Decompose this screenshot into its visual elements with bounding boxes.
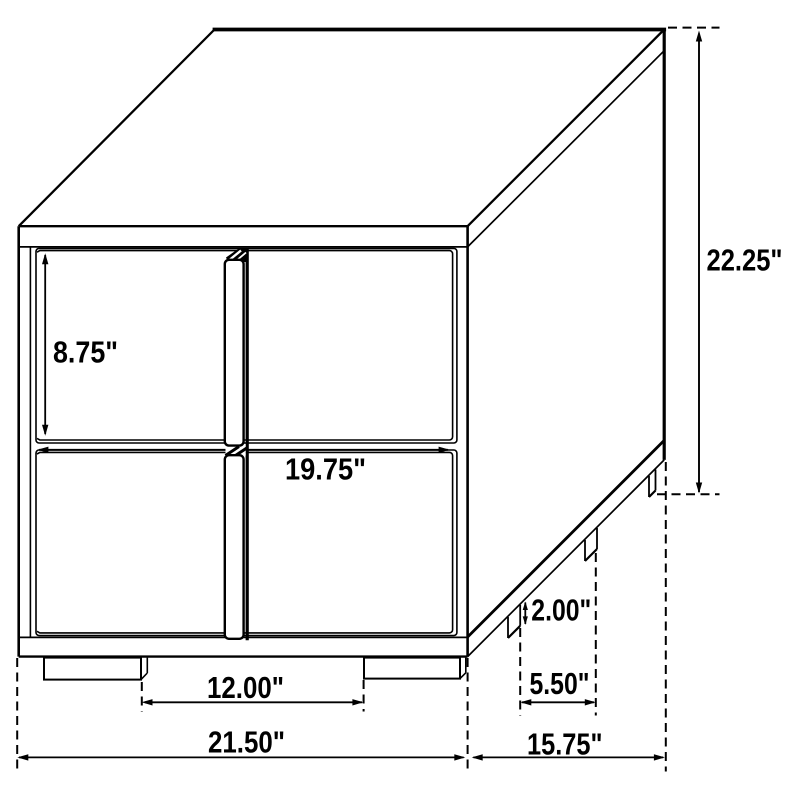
svg-text:15.75": 15.75" [527, 726, 603, 761]
svg-text:12.00": 12.00" [207, 670, 284, 705]
svg-text:5.50": 5.50" [530, 666, 590, 701]
svg-text:19.75": 19.75" [285, 452, 366, 487]
svg-text:22.25": 22.25" [707, 243, 783, 278]
svg-text:21.50": 21.50" [208, 725, 285, 760]
svg-text:2.00": 2.00" [531, 593, 591, 628]
svg-text:8.75": 8.75" [53, 335, 118, 370]
